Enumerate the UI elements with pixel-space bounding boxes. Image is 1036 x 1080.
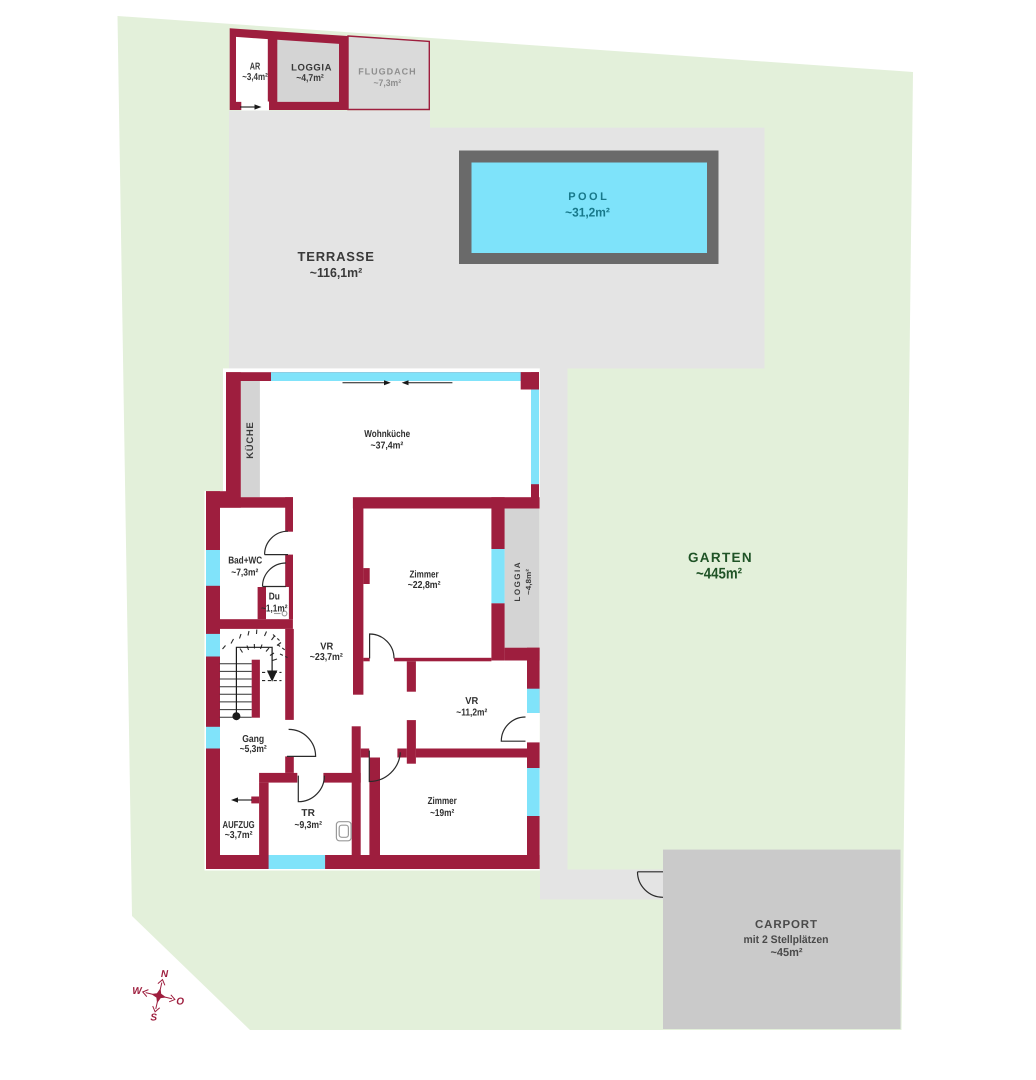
svg-text:O: O [176,996,184,1007]
svg-text:LOGGIA: LOGGIA [291,63,332,74]
svg-text:~7,3m²: ~7,3m² [374,78,402,89]
svg-text:~11,2m²: ~11,2m² [456,707,488,718]
svg-text:GARTEN: GARTEN [688,550,752,565]
svg-text:LOGGIA: LOGGIA [513,562,522,601]
svg-text:~37,4m²: ~37,4m² [371,440,404,451]
svg-text:FLUGDACH: FLUGDACH [358,66,415,76]
svg-text:AR: AR [250,62,261,73]
svg-text:~31,2m²: ~31,2m² [565,206,610,220]
svg-text:~45m²: ~45m² [770,947,802,959]
svg-text:Bad+WC: Bad+WC [228,556,262,567]
svg-text:~3,4m²: ~3,4m² [242,72,268,83]
svg-text:Zimmer: Zimmer [428,796,457,807]
svg-text:CARPORT: CARPORT [755,919,817,931]
svg-text:~7,3m²: ~7,3m² [231,567,259,578]
svg-text:KÜCHE: KÜCHE [244,422,256,459]
svg-text:~1,1m²: ~1,1m² [261,604,288,615]
svg-text:W: W [132,986,143,997]
svg-text:~19m²: ~19m² [430,808,455,819]
svg-text:Du: Du [269,592,280,603]
svg-text:mit 2 Stellplätzen: mit 2 Stellplätzen [744,934,829,946]
svg-text:VR: VR [465,696,479,707]
svg-text:~4,8m²: ~4,8m² [524,568,533,595]
svg-text:~4,7m²: ~4,7m² [296,73,324,84]
svg-text:~23,7m²: ~23,7m² [310,652,344,663]
svg-text:N: N [161,969,169,980]
svg-text:~5,3m²: ~5,3m² [240,744,268,755]
svg-text:AUFZUG: AUFZUG [223,820,255,831]
svg-text:~445m²: ~445m² [696,566,742,583]
svg-text:VR: VR [320,641,334,652]
svg-text:Zimmer: Zimmer [410,570,439,581]
svg-text:Wohnküche: Wohnküche [364,429,410,440]
svg-text:S: S [150,1013,157,1024]
svg-text:~9,3m²: ~9,3m² [294,820,322,831]
svg-text:TR: TR [301,808,315,819]
svg-text:~3,7m²: ~3,7m² [225,830,253,841]
svg-text:TERRASSE: TERRASSE [297,249,374,264]
svg-text:~116,1m²: ~116,1m² [310,265,363,280]
svg-text:~22,8m²: ~22,8m² [408,580,441,591]
